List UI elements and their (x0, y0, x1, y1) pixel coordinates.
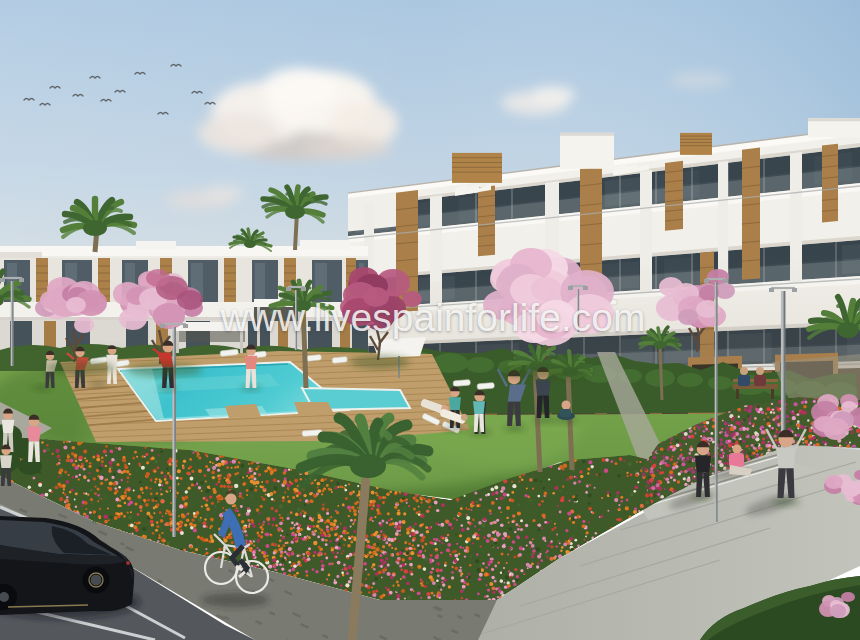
svg-text:www.livespainforlife.com: www.livespainforlife.com (220, 296, 646, 339)
